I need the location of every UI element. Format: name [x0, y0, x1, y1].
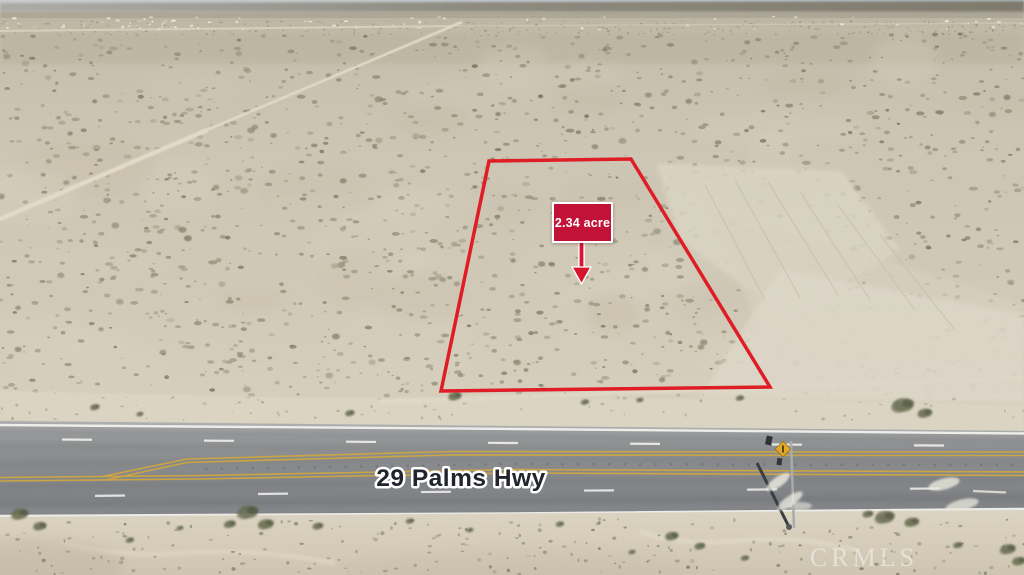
acreage-label: 2.34 acre — [552, 202, 613, 243]
aerial-photo: 29 Palms Hwy 2.34 acre CRMLS — [0, 0, 1024, 575]
pole-base — [786, 524, 792, 530]
highway-name-label: 29 Palms Hwy — [376, 465, 545, 492]
small-sign-back-icon — [776, 458, 782, 466]
crmls-watermark: CRMLS — [810, 543, 918, 573]
aerial-scene: 29 Palms Hwy — [0, 0, 1024, 575]
